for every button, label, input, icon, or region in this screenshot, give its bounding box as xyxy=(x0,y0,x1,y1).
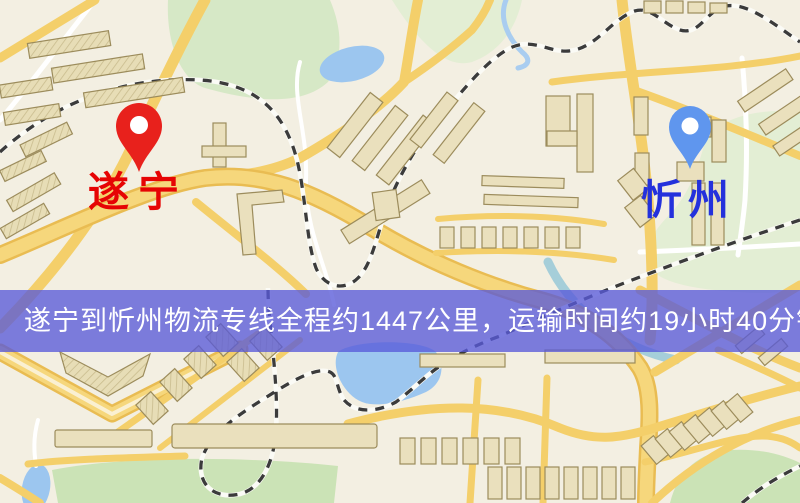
destination-pin[interactable] xyxy=(664,103,716,171)
route-info-text: 遂宁到忻州物流专线全程约1447公里，运输时间约19小时40分钟. xyxy=(24,306,800,336)
map-screenshot: 遂宁到忻州物流专线全程约1447公里，运输时间约19小时40分钟. 遂宁 忻州 xyxy=(0,0,800,503)
destination-city-label: 忻州 xyxy=(641,180,735,221)
map-canvas[interactable] xyxy=(0,0,800,503)
origin-pin[interactable] xyxy=(111,100,167,174)
origin-city-label: 遂宁 xyxy=(88,172,188,213)
blue-map-pin-icon xyxy=(664,103,716,171)
red-map-pin-icon xyxy=(111,100,167,174)
route-info-banner: 遂宁到忻州物流专线全程约1447公里，运输时间约19小时40分钟. xyxy=(0,290,800,352)
